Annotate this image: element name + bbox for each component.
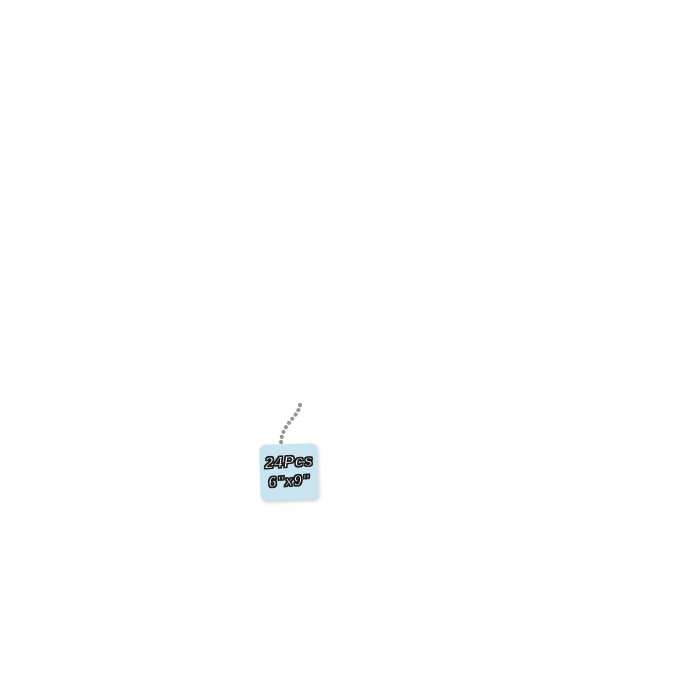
- product-photo: 24Pcs 6"x9": [0, 0, 679, 682]
- tag-pcs-text: 24Pcs: [264, 453, 314, 474]
- tag-card: 24Pcs 6"x9": [259, 443, 318, 500]
- hang-tag: 24Pcs 6"x9": [256, 402, 326, 506]
- tag-size-text: 6"x9": [268, 472, 311, 492]
- ball-chain-icon: [270, 402, 310, 448]
